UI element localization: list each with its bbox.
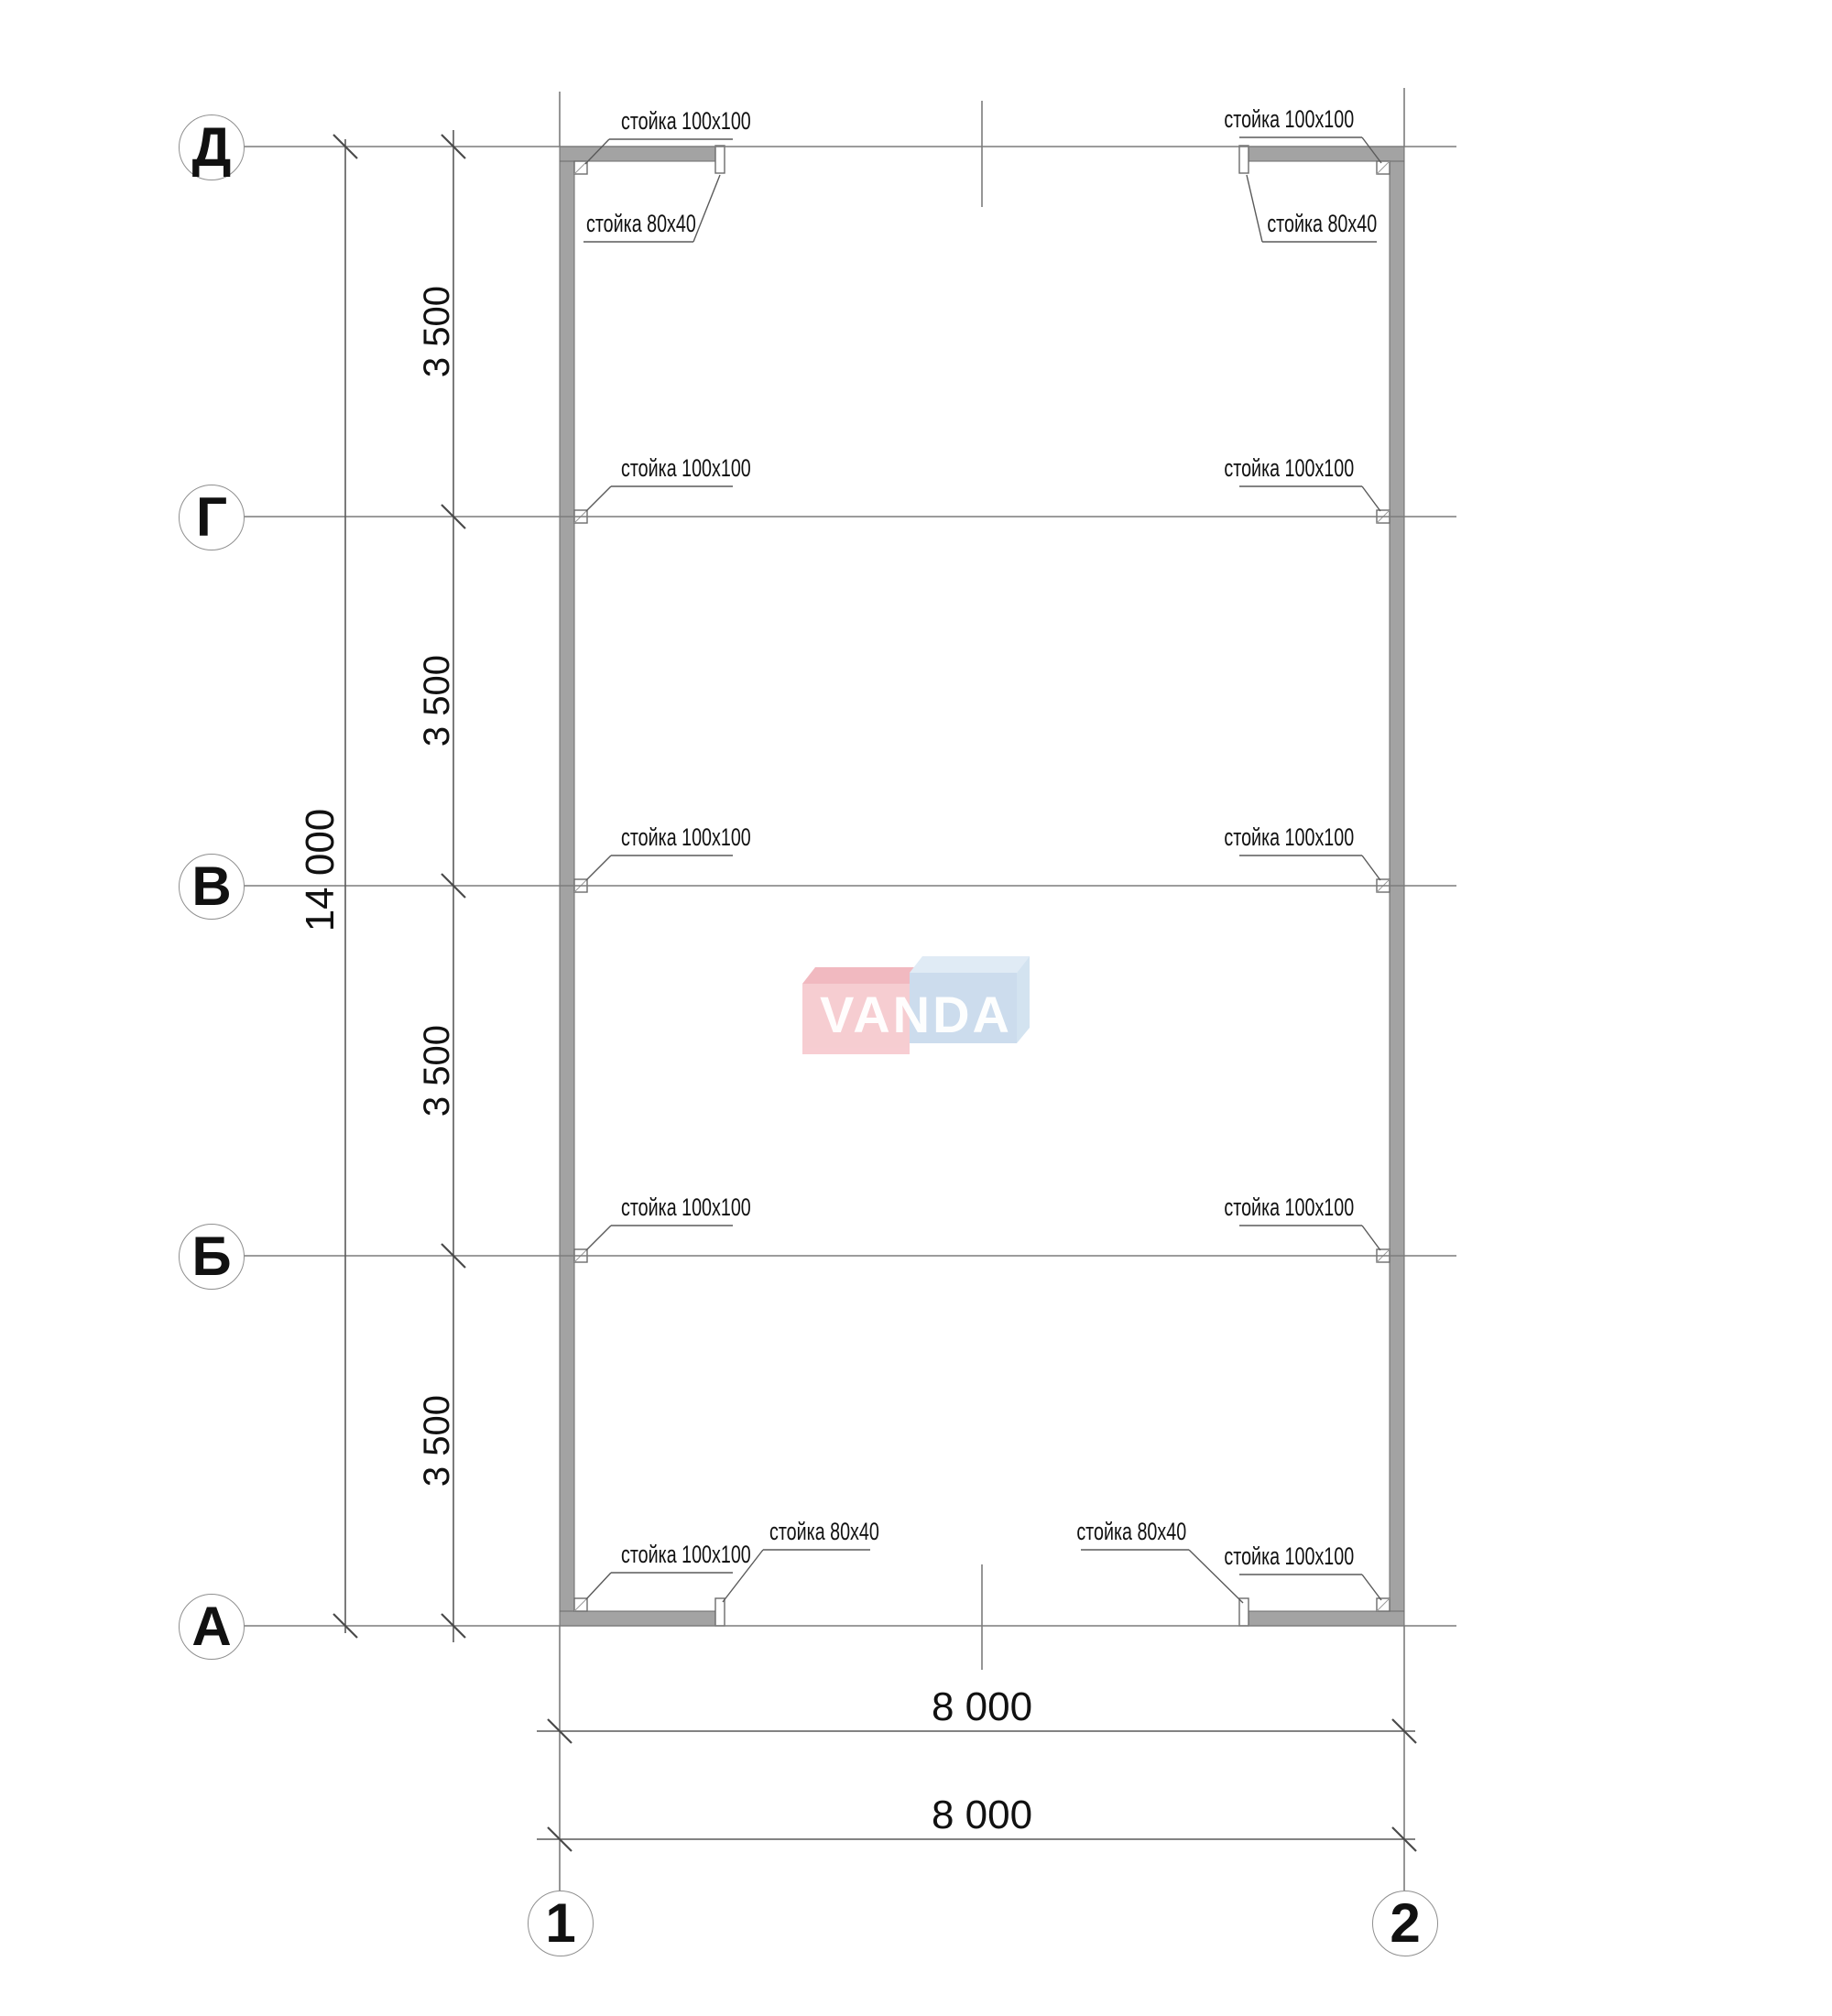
dim-text-overall-height: 14 000 <box>300 760 341 980</box>
wall-top-right <box>1248 147 1404 161</box>
label-post100-right-g: стойка 100x100 <box>1224 454 1354 482</box>
dim-text-bay-2: 3 500 <box>419 627 455 774</box>
axis-bubble-col-1: 1 <box>528 1891 594 1956</box>
label-post80-bottom-right: стойка 80x40 <box>1076 1518 1186 1545</box>
axis-bubble-row-g: Г <box>179 485 245 550</box>
label-post80-bottom-left: стойка 80x40 <box>769 1518 879 1545</box>
post-80x40-bottom-left <box>715 1598 725 1626</box>
label-post100-right-b: стойка 100x100 <box>1224 1193 1354 1221</box>
axis-bubble-row-a: А <box>179 1594 245 1660</box>
wall-top-left <box>560 147 717 161</box>
label-post100-top-right: стойка 100x100 <box>1224 105 1354 133</box>
leader-lines <box>583 137 1381 1603</box>
floor-plan-canvas: Д Г В Б А 1 2 14 000 3 500 3 500 3 500 3… <box>0 0 1832 2016</box>
logo-blue-top-flap <box>910 956 1030 973</box>
wall-bottom-left <box>560 1611 717 1626</box>
post-80x40-bottom-right <box>1239 1598 1249 1626</box>
dim-text-overall-width-2: 8 000 <box>872 1795 1092 1836</box>
axis-bubble-row-v: В <box>179 854 245 920</box>
dim-text-bay-3: 3 500 <box>419 997 455 1144</box>
axis-bubble-row-b: Б <box>179 1224 245 1290</box>
dim-text-overall-width-1: 8 000 <box>872 1687 1092 1727</box>
axis-bubble-row-d: Д <box>179 114 245 180</box>
label-post100-bottom-right: стойка 100x100 <box>1224 1542 1354 1570</box>
label-post100-left-b: стойка 100x100 <box>621 1193 751 1221</box>
watermark-logo-text: VANDA <box>806 987 1026 1042</box>
label-post100-right-v: стойка 100x100 <box>1224 823 1354 851</box>
axis-bubble-col-2: 2 <box>1372 1891 1438 1956</box>
dim-text-bay-4: 3 500 <box>419 1368 455 1514</box>
wall-bottom-right <box>1248 1611 1404 1626</box>
post-80x40-top-left <box>715 146 725 173</box>
post-80x40-top-right <box>1239 146 1249 173</box>
label-post100-left-g: стойка 100x100 <box>621 454 751 482</box>
label-post100-top-left: стойка 100x100 <box>621 107 751 135</box>
label-post80-top-left: стойка 80x40 <box>586 210 696 237</box>
label-post100-bottom-left: стойка 100x100 <box>621 1541 751 1568</box>
label-post100-left-v: стойка 100x100 <box>621 823 751 851</box>
dim-text-bay-1: 3 500 <box>419 258 455 405</box>
logo-pink-top-flap <box>802 967 922 984</box>
label-post80-top-right: стойка 80x40 <box>1267 210 1377 237</box>
